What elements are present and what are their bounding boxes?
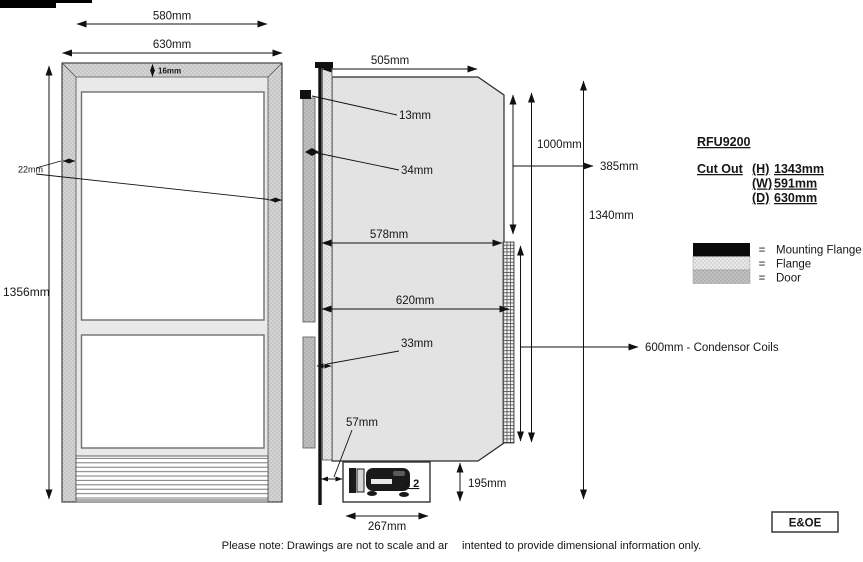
dim-label-16: 16mm (158, 67, 181, 76)
door-front-view: 580mm 630mm 16mm 22mm 1356mm (3, 11, 282, 503)
dim-label-578: 578mm (370, 229, 408, 241)
cabinet-body (332, 77, 504, 461)
dim-label-22: 22mm (18, 165, 43, 175)
dim-label-620: 620mm (396, 295, 434, 307)
dim-label-1356: 1356mm (3, 285, 50, 299)
flange-strip (323, 68, 333, 460)
dim-label-630: 630mm (153, 39, 191, 51)
legend-eq-1: = (759, 245, 766, 257)
legend-swatch-flange (693, 257, 750, 271)
legend-eq-2: = (759, 259, 766, 271)
legend-label-flange: Flange (776, 259, 811, 271)
door-louver-vent (76, 456, 268, 500)
door-profile-upper (303, 98, 315, 322)
mounting-flange-cap (315, 62, 333, 68)
legend-label-door: Door (776, 273, 801, 285)
dim-label-195: 195mm (468, 478, 506, 490)
condenser-coils-label: 600mm - Condensor Coils (645, 342, 779, 354)
dim-label-267: 267mm (368, 521, 406, 533)
mounting-flange-tab (300, 90, 311, 99)
scan-artifact-line (56, 0, 92, 3)
legend-swatch-door (693, 270, 750, 284)
scan-artifact-bar (0, 0, 56, 8)
dim-label-1340: 1340mm (589, 210, 634, 222)
technical-drawing-page: 580mm 630mm 16mm 22mm 1356mm (0, 0, 863, 562)
cutout-heading: Cut Out (697, 162, 744, 176)
dim-label-580: 580mm (153, 11, 191, 23)
door-window-upper (82, 92, 265, 320)
compressor-qty-label: x 2 (404, 478, 419, 490)
mounting-flange-line (318, 62, 321, 505)
dim-label-33: 33mm (401, 338, 433, 350)
eoe-label: E&OE (789, 518, 822, 530)
footer-note-part1: Please note: Drawings are not to scale a… (222, 540, 449, 552)
cutout-w-key: (W) (752, 177, 772, 191)
legend-eq-3: = (759, 273, 766, 285)
legend-swatch-mounting-flange (693, 243, 750, 257)
dim-label-505: 505mm (371, 55, 409, 67)
cutout-h-key: (H) (752, 162, 769, 176)
door-profile-lower (303, 337, 315, 448)
door-window-lower (82, 335, 265, 448)
footer: E&OE Please note: Drawings are not to sc… (222, 512, 838, 552)
dim-label-57: 57mm (346, 417, 378, 429)
cutout-d-key: (D) (752, 191, 769, 205)
footer-note-part2: intented to provide dimensional informat… (462, 540, 701, 552)
drawing-svg: 580mm 630mm 16mm 22mm 1356mm (0, 0, 863, 562)
dim-label-34: 34mm (401, 165, 433, 177)
dim-label-1000: 1000mm (537, 139, 582, 151)
info-panel: RFU9200 Cut Out (H) 1343mm (W) 591mm (D)… (693, 135, 862, 285)
dim-label-385: 385mm (600, 161, 638, 173)
cutout-h-value: 1343mm (774, 162, 824, 176)
dim-label-13: 13mm (399, 110, 431, 122)
legend-label-mounting-flange: Mounting Flange (776, 245, 862, 257)
cutout-d-value: 630mm (774, 191, 817, 205)
condenser-coils-strip (503, 242, 514, 443)
cutout-w-value: 591mm (774, 177, 817, 191)
unit-side-view: 505mm 13mm 34mm 578mm 620mm 33mm 57mm (300, 55, 779, 533)
model-number: RFU9200 (697, 135, 751, 149)
